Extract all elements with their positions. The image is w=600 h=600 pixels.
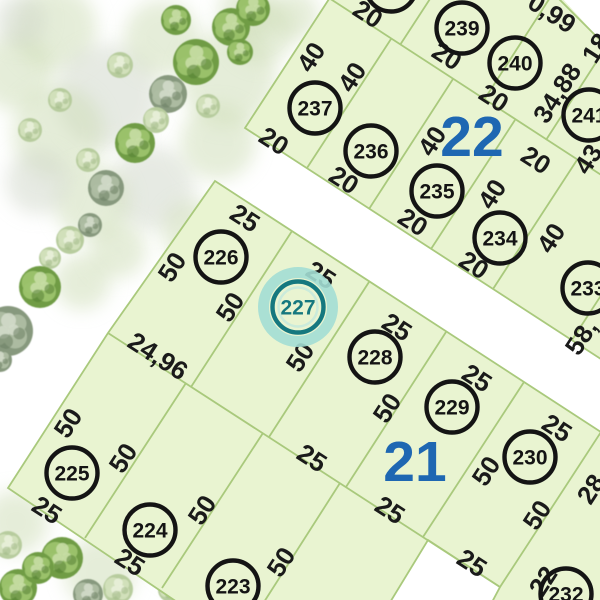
tree <box>39 247 61 269</box>
tree-shadow <box>32 570 42 580</box>
tree <box>227 39 253 65</box>
parcel-number: 232 <box>548 584 583 600</box>
tree-shadow <box>172 91 181 100</box>
tree-shadow <box>11 543 18 550</box>
tree-shadow <box>160 96 171 107</box>
tree-shadow <box>201 59 212 70</box>
tree-shadow <box>33 128 39 134</box>
block-number-21: 21 <box>383 430 446 494</box>
parcel-number: 225 <box>54 463 89 486</box>
tree <box>76 148 100 172</box>
tree-shadow <box>63 98 69 104</box>
tree-shadow <box>121 587 128 594</box>
tree <box>19 266 61 308</box>
tree-shadow <box>235 54 243 62</box>
tree-shadow <box>73 238 80 245</box>
tree-shadow <box>13 328 25 340</box>
parcel-number: 230 <box>512 447 547 470</box>
parcel-number: 228 <box>357 347 392 370</box>
tree <box>161 5 191 35</box>
tree-shadow <box>44 284 54 294</box>
tree-shadow <box>179 18 186 25</box>
tree-shadow <box>112 591 121 600</box>
vegetation-wash <box>180 104 256 180</box>
tree-shadow <box>46 259 53 266</box>
tree-shadow <box>243 50 249 56</box>
tree <box>143 107 169 133</box>
tree-shadow <box>203 107 210 114</box>
tree-shadow <box>25 131 32 138</box>
tree-shadow <box>170 22 179 31</box>
tree <box>48 88 72 112</box>
parcel-number: 233 <box>570 278 600 301</box>
tree-shadow <box>32 290 45 303</box>
parcel-227-marker[interactable]: 227 <box>264 273 333 342</box>
tree-shadow <box>115 67 123 75</box>
tree <box>22 552 54 584</box>
tree-shadow <box>91 158 97 164</box>
tree-shadow <box>41 566 49 574</box>
tree <box>18 118 42 142</box>
tree-shadow <box>83 161 90 168</box>
tree-shadow <box>99 190 110 201</box>
tree-shadow <box>110 185 119 194</box>
tree-shadow <box>127 145 139 157</box>
tree-shadow <box>85 226 92 233</box>
tree-shadow <box>151 122 159 130</box>
tree-shadow <box>139 140 149 150</box>
tree-shadow <box>211 104 217 110</box>
tree-shadow <box>54 561 67 574</box>
parcel-number: 236 <box>353 141 388 164</box>
parcel-number: 240 <box>497 53 532 76</box>
tree-shadow <box>246 11 256 21</box>
tree-shadow <box>159 118 165 124</box>
vegetation-wash <box>6 150 70 214</box>
parcel-number: 226 <box>203 247 238 270</box>
tree-shadow <box>235 24 244 33</box>
tree-shadow <box>223 29 234 40</box>
tree <box>173 39 219 85</box>
parcel-number: 237 <box>297 98 332 121</box>
parcel-number: 239 <box>444 18 479 41</box>
tree <box>78 213 102 237</box>
tree <box>107 52 133 78</box>
tree <box>196 94 220 118</box>
tree-shadow <box>64 242 72 250</box>
parcel-number: 229 <box>434 397 469 420</box>
tree-shadow <box>22 585 31 594</box>
parcel-number: 234 <box>482 228 517 251</box>
tree-shadow <box>55 101 62 108</box>
tree <box>88 170 124 206</box>
tree-shadow <box>66 555 76 565</box>
parcel-number: 223 <box>215 576 250 599</box>
tree-shadow <box>93 223 99 229</box>
cadastral-map[interactable]: 200,991820202020202020404040404034,8843,… <box>0 0 600 600</box>
tree-shadow <box>123 63 129 69</box>
parcel-number: 235 <box>419 181 454 204</box>
tree-shadow <box>52 256 57 261</box>
tree-shadow <box>187 65 201 79</box>
tree-shadow <box>257 7 265 15</box>
tree-shadow <box>3 358 9 364</box>
parcel-number: 227 <box>280 297 315 320</box>
parcel-number: 241 <box>571 105 600 128</box>
block-number-22: 22 <box>440 105 503 169</box>
parcel-number: 224 <box>132 520 167 543</box>
tree-shadow <box>2 547 10 555</box>
tree-shadow <box>91 592 98 599</box>
map-canvas[interactable]: 200,991820202020202020404040404034,8843,… <box>0 0 600 600</box>
